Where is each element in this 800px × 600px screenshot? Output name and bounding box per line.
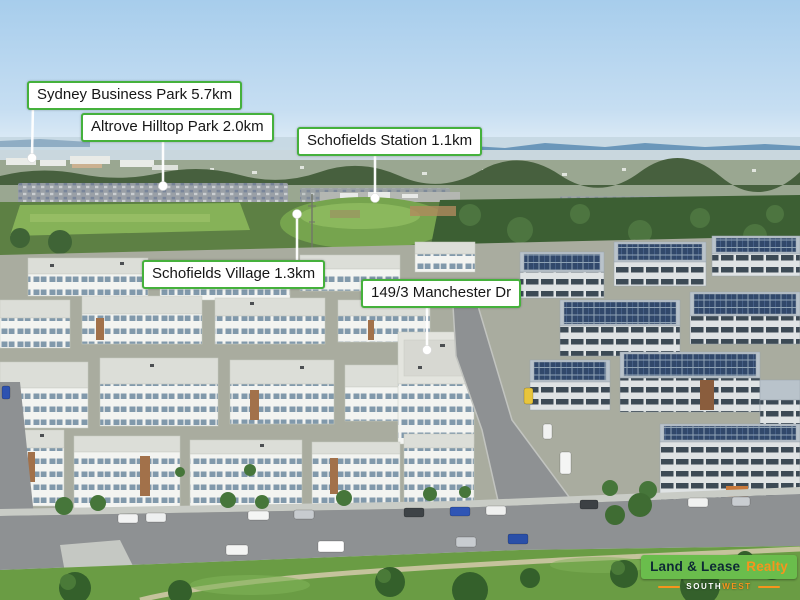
agency-logo-banner: Land & LeaseRealty: [641, 555, 797, 579]
label-schofields-station: Schofields Station 1.1km: [297, 127, 482, 156]
logo-dash-left: [658, 586, 680, 588]
marker-dot-schofields-station: [371, 194, 380, 203]
label-altrove-hilltop-park: Altrove Hilltop Park 2.0km: [81, 113, 274, 142]
marker-dots: [28, 154, 432, 355]
logo-brand-suffix: Realty: [746, 559, 788, 574]
agency-logo: Land & LeaseRealty SOUTHWEST: [641, 555, 797, 591]
label-schofields-village: Schofields Village 1.3km: [142, 260, 325, 289]
label-property-address: 149/3 Manchester Dr: [361, 279, 521, 308]
logo-dash-right: [758, 586, 780, 588]
aerial-photo: Sydney Business Park 5.7km Altrove Hillt…: [0, 0, 800, 600]
marker-dot-sydney-business-park: [28, 154, 37, 163]
leader-line-sydney-business-park: [32, 104, 33, 157]
marker-dot-schofields-village: [293, 210, 302, 219]
marker-dot-altrove-hilltop-park: [159, 182, 168, 191]
logo-brand-name: Land & Lease: [650, 559, 740, 574]
label-sydney-business-park: Sydney Business Park 5.7km: [27, 81, 242, 110]
marker-dot-property-address: [423, 346, 432, 355]
agency-logo-region: SOUTHWEST: [641, 582, 797, 591]
logo-region-label: SOUTHWEST: [686, 582, 752, 591]
